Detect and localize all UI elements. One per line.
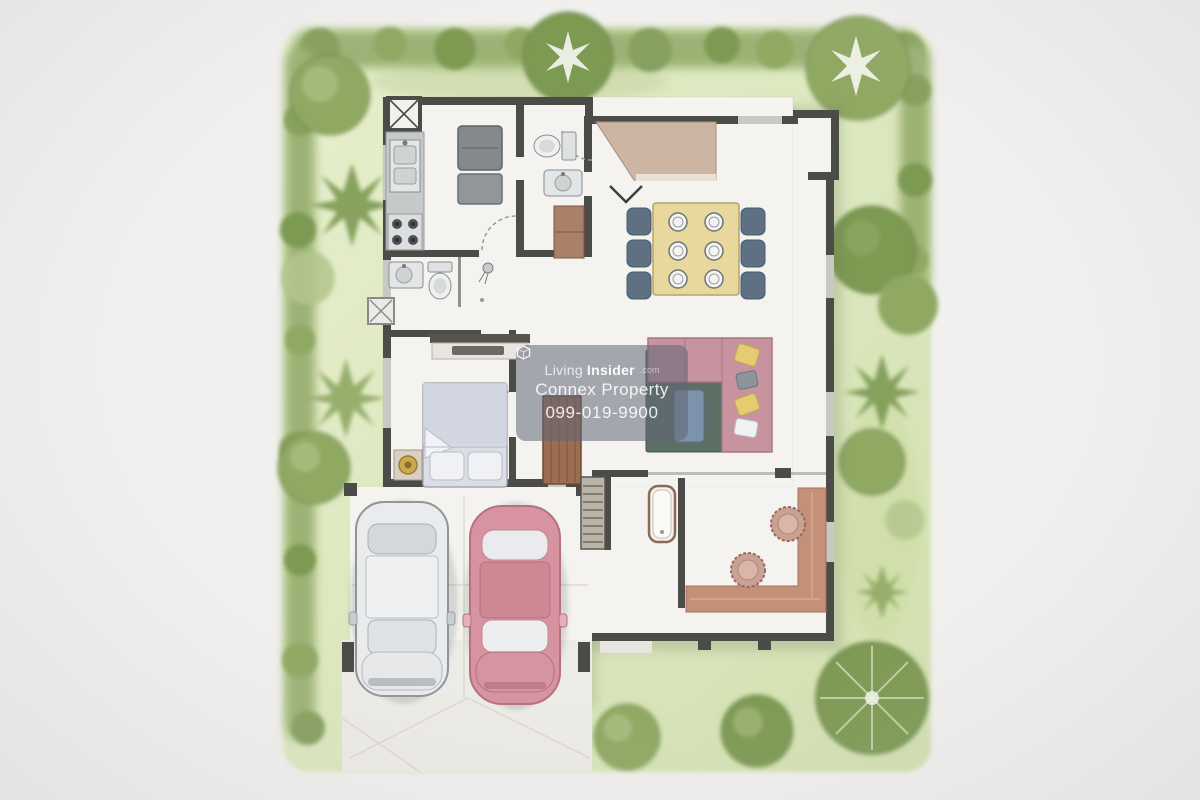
bush-left [281,251,335,305]
nightstand [394,450,422,480]
sink-mid [389,262,423,288]
wall-shelf [430,334,530,343]
suv-rear-window [368,524,436,554]
entry-step [600,641,652,653]
sedan-mirror [559,614,567,627]
window-top [738,116,782,124]
tree-bottom-right [816,642,928,754]
tree-top-center [523,12,613,102]
sedan-roof [480,562,550,618]
brand-insider: Insider [587,363,635,377]
tree-left-lower [278,432,350,504]
rattan-chair-1 [771,507,805,541]
rattan-chair-2 [731,553,765,587]
bed [423,383,507,487]
sedan-rear-window [482,530,548,560]
suv-windshield [368,620,436,654]
window-right-3 [826,522,834,562]
sedan-windshield [482,620,548,652]
suv-roof [366,556,438,618]
watermark-company: Connex Property [535,380,669,400]
kitchen-sink [390,140,420,192]
tree-right-mid [839,429,905,495]
toilet-mid [428,262,452,299]
watermark-badge: LivingInsider.com Connex Property 099-01… [516,345,688,441]
window-right-2 [826,392,834,436]
brand-living: Living [545,363,583,377]
stove [388,214,422,250]
dining-set [627,203,765,299]
suv-mirror [349,612,357,625]
livinginsider-logo-icon [516,345,531,360]
bathtub [649,486,675,542]
palm-right [844,354,920,430]
ac-unit [368,298,394,324]
car-white-suv [349,500,458,704]
dining-table [653,203,739,295]
watermark-brand-row: LivingInsider.com [545,363,660,377]
sedan-mirror [463,614,471,627]
window-right-1 [826,255,834,298]
refrigerator [458,126,502,204]
watermark-phone: 099-019-9900 [545,403,658,423]
car-red-sedan [463,502,568,710]
tree-top-left [290,55,370,135]
tree-top-right [806,16,910,120]
pillow [430,452,464,480]
staircase [581,477,605,549]
pillow [468,452,502,480]
sink-top [544,170,582,196]
terrace-glass-doors [648,472,826,475]
floor-plan-image: LivingInsider.com Connex Property 099-01… [0,0,1200,800]
suv-mirror [447,612,455,625]
window-bedroom [383,358,391,428]
brand-suffix: .com [640,363,660,377]
palm-right-small [855,565,909,619]
